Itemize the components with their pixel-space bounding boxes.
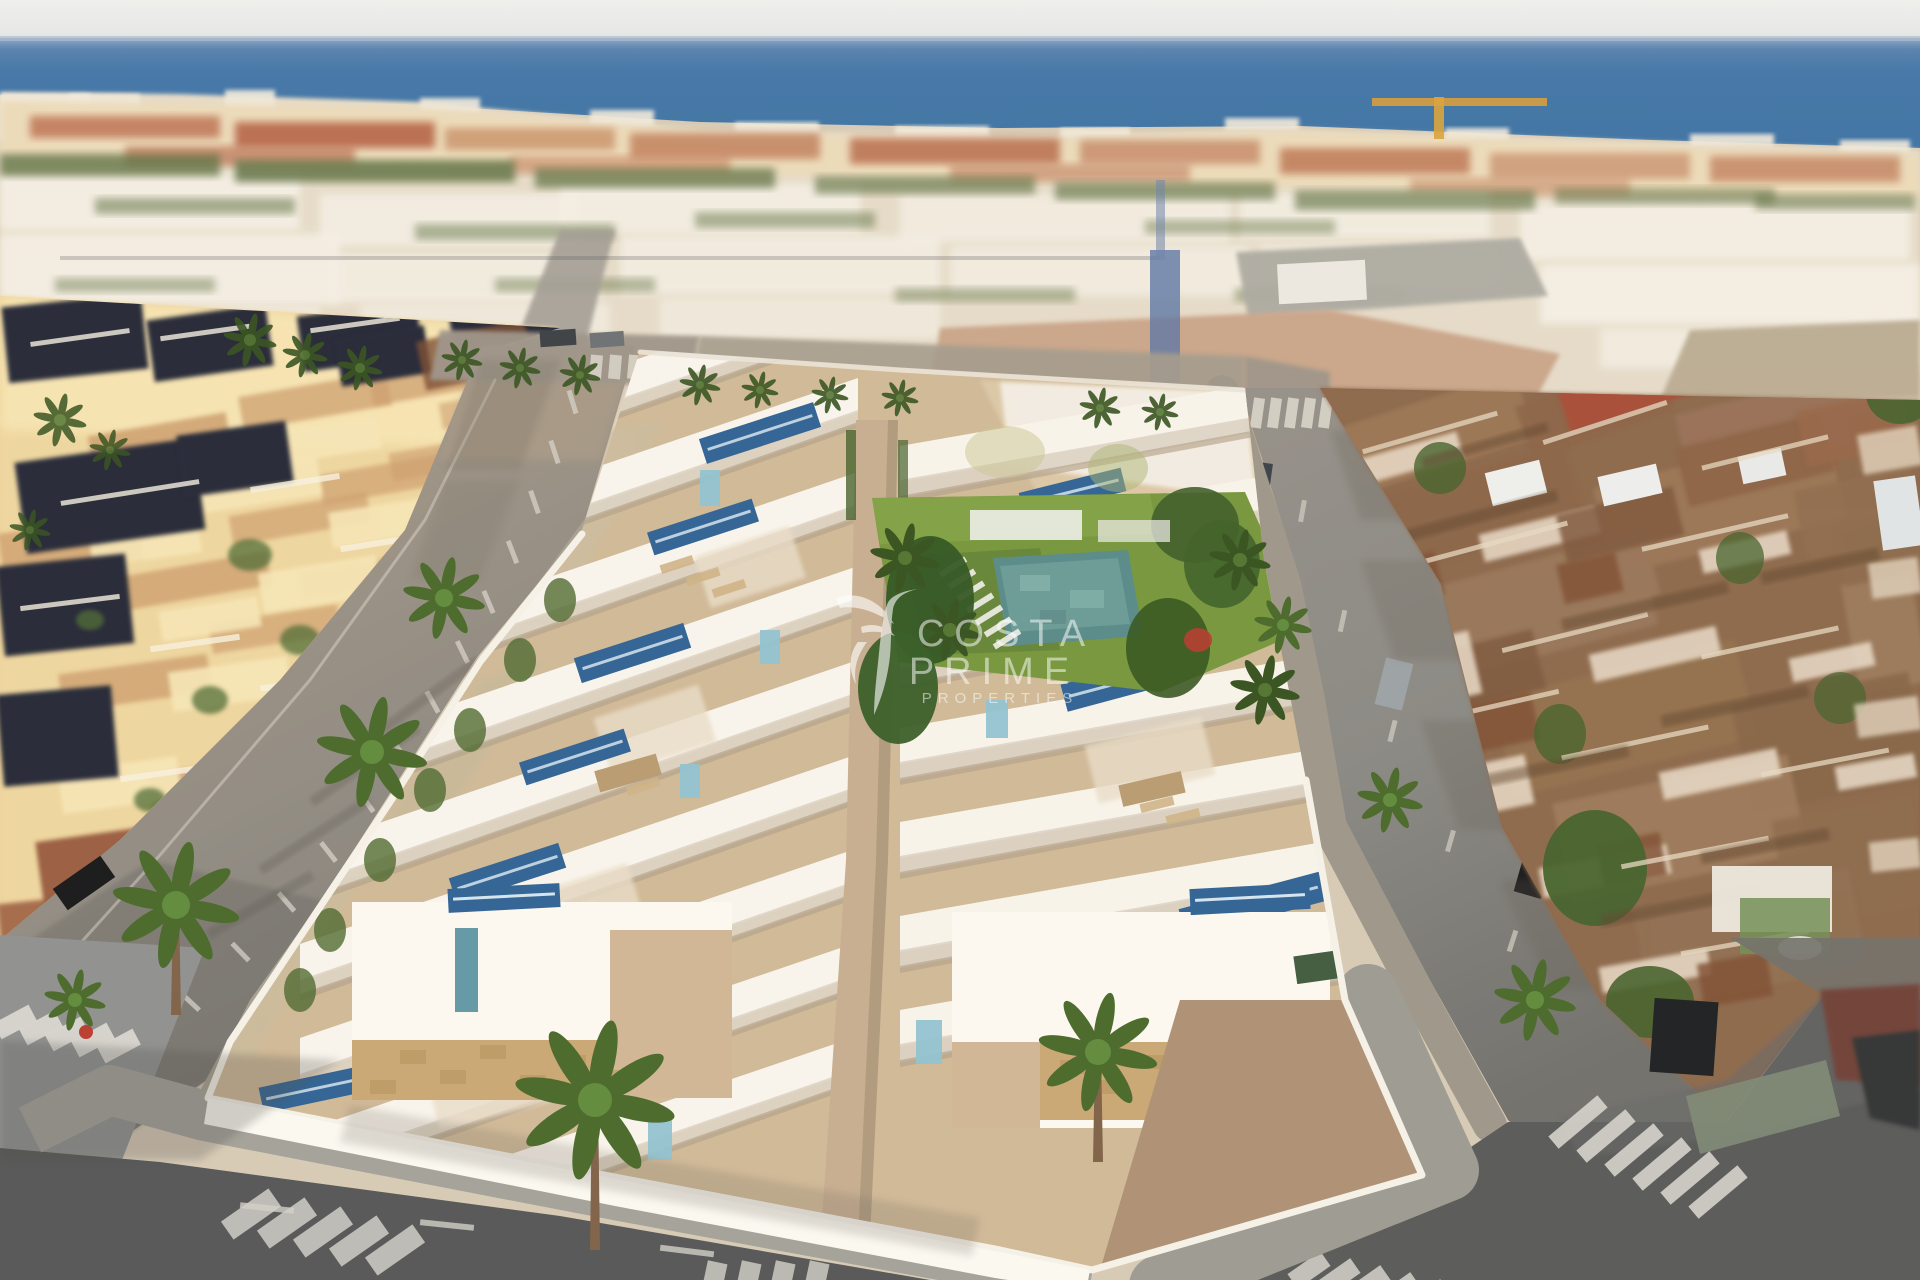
svg-text:COSTA: COSTA [917,613,1095,655]
svg-text:PRIME: PRIME [909,651,1079,693]
svg-text:PROPERTIES: PROPERTIES [922,690,1078,707]
